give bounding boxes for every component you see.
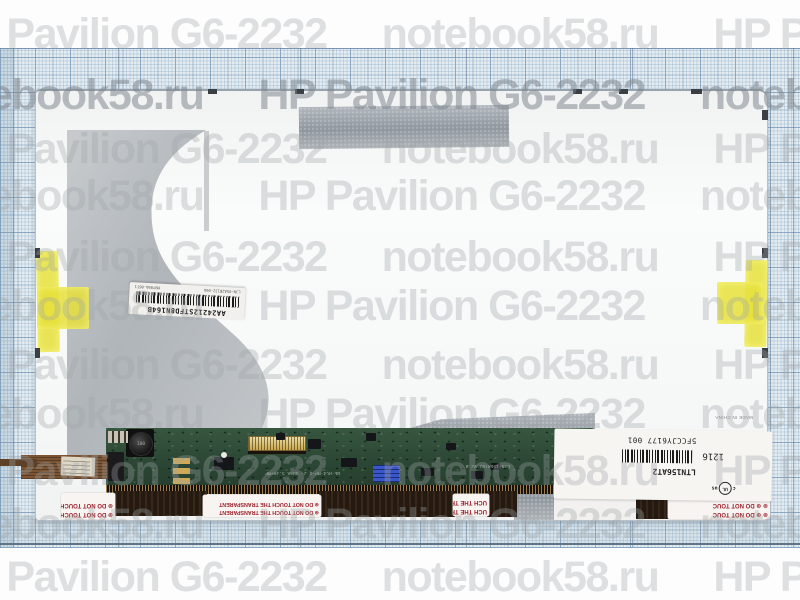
panel-info-label: 5FCCJY6177 001 LTN156AT2 1216 c UL us (554, 428, 773, 501)
paper-fold-line (793, 48, 794, 547)
barcode-sticker: AA24212STFD8N164B LJN-05A2B132-09A M9T09… (128, 282, 246, 320)
mounting-notch (619, 89, 628, 94)
ul-mark-c: c (733, 485, 736, 491)
blue-qc-sticker (373, 465, 400, 482)
ic-chip (308, 439, 321, 449)
cof-flex (115, 491, 207, 516)
barcode-sticker-code: AA24212STFD8N164B (147, 305, 226, 317)
mounting-notch (573, 89, 582, 94)
warning-text: ⊛ DO NOT TOUCH THE TRANSPARENT (205, 500, 319, 508)
mounting-tab (762, 348, 768, 358)
paper-edge-line (0, 543, 800, 545)
gold-pad-block (173, 458, 190, 484)
ic-chip (471, 471, 483, 479)
gray-tape-top (299, 105, 509, 149)
made-in-china-text: MADE IN CHINA (709, 415, 753, 420)
ic-chip (341, 458, 357, 467)
watermark-row: HP Pavilion G6-2232notebook58.ruHP Pavil… (0, 556, 800, 599)
ic-chip (446, 443, 456, 450)
product-photo: AA24212STFD8N164B LJN-05A2B132-09A M9T09… (0, 0, 800, 600)
warning-text: UCH THE TRA (455, 497, 487, 506)
warning-text: ⊛ ⊛ DO NOT TOUC (670, 509, 768, 518)
cof-flex (487, 491, 517, 517)
flex-cable-tail (0, 459, 37, 466)
alignment-dot (221, 452, 227, 458)
lvds-connector-slot (248, 451, 306, 454)
graph-paper-edge (0, 48, 14, 547)
flex-cable-connector (107, 452, 124, 481)
warning-text: ⊛ ⊛ DO NOT TOUC (670, 500, 768, 509)
label-model-number: LTN156AT2 (630, 467, 696, 477)
lcd-panel-back: AA24212STFD8N164B LJN-05A2B132-09A M9T09… (35, 89, 768, 521)
ic-chip (366, 433, 376, 441)
barcode-sticker-subcode-left: LJN-05A2B132-09A (204, 288, 241, 295)
inductor: 100 (129, 432, 153, 456)
watermark-model-text: HP Pavilion G6-2232 (713, 553, 800, 600)
warning-sticker: ⊛ DO NOT TOUCH THE TRANSPARENT ⊛ DO NOT … (203, 495, 321, 517)
mounting-notch (691, 89, 702, 94)
mounting-tab (762, 110, 768, 120)
label-lower-edge (554, 497, 636, 520)
warning-sticker: UCH THE TRA UCH THE TRA (453, 494, 489, 516)
mounting-notch (208, 89, 217, 94)
warning-sticker: ⊛ DO NOT TOUCH THE ⊛ DO NOT TOUCH THE (61, 493, 115, 519)
ic-chip (421, 468, 434, 476)
watermark-site-text: notebook58.ru (382, 553, 659, 600)
ic-chip (214, 457, 234, 470)
ul-mark-logo: UL (719, 482, 732, 495)
label-date-code: 1216 (692, 450, 724, 460)
label-serial-number: 5FCCJY6177 001 (604, 435, 696, 445)
warning-text: ⊛ DO NOT TOUCH THE (63, 509, 113, 518)
mounting-tab (762, 248, 768, 258)
flex-cable-label (61, 456, 96, 476)
watermark-model-text: HP Pavilion G6-2232 (0, 553, 327, 600)
mounting-tab (35, 248, 40, 258)
pcb-silkscreen-text: LTN 156AT02 V2.B (438, 463, 510, 468)
mounting-notch (295, 89, 304, 94)
warning-text: ⊛ DO NOT TOUCH THE (63, 500, 113, 509)
barcode-sticker-subcode-right: M9T09A-06T1 (135, 284, 160, 290)
label-barcode (622, 449, 692, 463)
ul-mark-us: us (712, 485, 718, 491)
ul-certification-mark: c UL us (698, 480, 736, 496)
yellow-tape-right-horizontal (717, 282, 763, 324)
ic-chip (276, 433, 285, 440)
pcb-silkscreen-text: BE-RC4-MP-Q 2- 4BmA 5.3V+MP (248, 470, 340, 475)
warning-text: ⊛ DO NOT TOUCH THE TRANSPARENT (205, 508, 319, 516)
capacitor-row (108, 431, 128, 443)
cof-flex (319, 491, 455, 517)
warning-text: UCH THE TRA (455, 506, 487, 515)
yellow-tape-left-horizontal (37, 287, 89, 329)
mounting-tab (35, 348, 40, 358)
